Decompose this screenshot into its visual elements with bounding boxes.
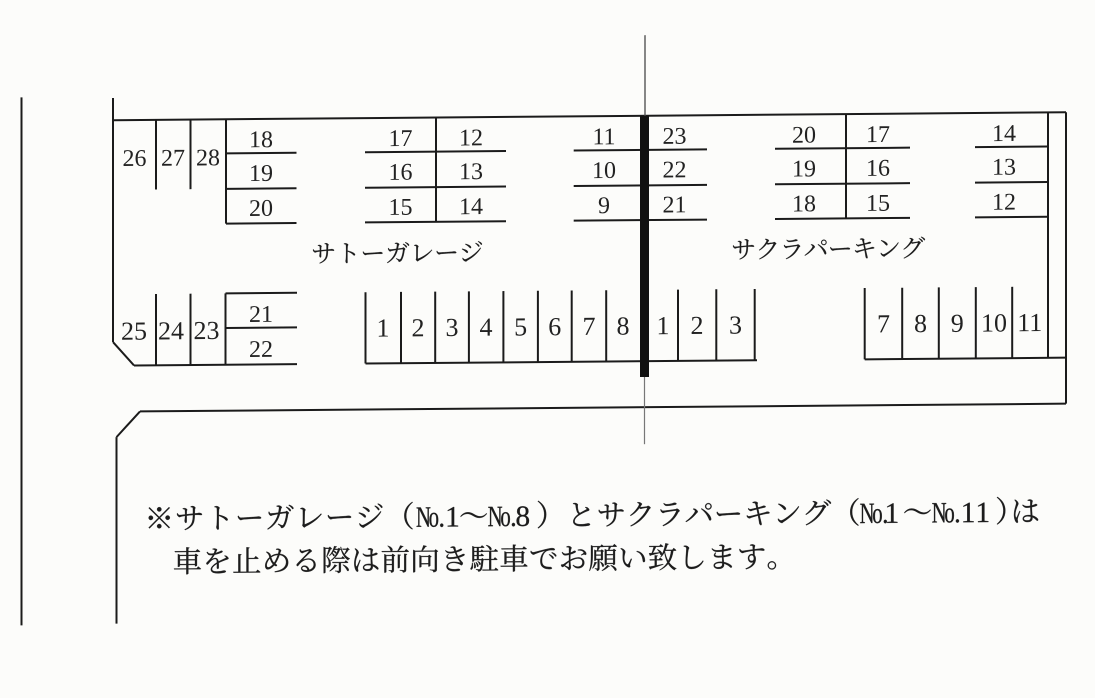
svg-text:21: 21 [249, 302, 273, 328]
svg-text:8: 8 [914, 309, 927, 338]
svg-text:23: 23 [663, 124, 687, 150]
svg-text:13: 13 [459, 159, 483, 185]
svg-text:22: 22 [663, 157, 687, 183]
svg-text:16: 16 [866, 156, 890, 182]
svg-text:15: 15 [866, 191, 890, 217]
svg-text:1: 1 [657, 311, 670, 340]
svg-text:15: 15 [389, 195, 413, 221]
svg-text:21: 21 [663, 192, 687, 218]
svg-text:9: 9 [951, 309, 964, 338]
svg-text:10: 10 [981, 308, 1007, 337]
svg-text:19: 19 [249, 161, 273, 187]
svg-text:5: 5 [514, 312, 527, 341]
svg-text:8: 8 [617, 312, 630, 341]
svg-text:14: 14 [992, 121, 1016, 147]
svg-text:4: 4 [480, 313, 493, 342]
svg-text:6: 6 [548, 312, 561, 341]
svg-text:18: 18 [249, 127, 273, 153]
svg-text:7: 7 [877, 309, 890, 338]
svg-text:13: 13 [992, 155, 1016, 181]
svg-text:22: 22 [249, 337, 273, 363]
svg-text:1: 1 [377, 314, 390, 343]
svg-text:17: 17 [389, 126, 413, 152]
svg-text:27: 27 [161, 146, 185, 172]
svg-text:11: 11 [592, 124, 615, 150]
svg-text:16: 16 [389, 160, 413, 186]
svg-text:17: 17 [866, 122, 890, 148]
svg-text:14: 14 [459, 194, 483, 220]
svg-text:7: 7 [583, 312, 596, 341]
svg-text:23: 23 [194, 316, 220, 345]
svg-text:10: 10 [592, 158, 616, 184]
svg-text:25: 25 [121, 317, 147, 346]
svg-text:12: 12 [992, 190, 1016, 216]
svg-text:26: 26 [123, 146, 147, 172]
svg-text:3: 3 [729, 311, 742, 340]
svg-text:9: 9 [598, 193, 610, 219]
svg-text:20: 20 [249, 196, 273, 222]
svg-text:24: 24 [158, 316, 184, 345]
svg-text:28: 28 [196, 145, 220, 171]
svg-text:18: 18 [792, 191, 816, 217]
svg-text:20: 20 [792, 123, 816, 149]
svg-text:11: 11 [1017, 308, 1042, 337]
svg-text:3: 3 [446, 313, 459, 342]
svg-text:12: 12 [459, 125, 483, 151]
svg-text:2: 2 [412, 313, 425, 342]
svg-text:19: 19 [792, 156, 816, 182]
svg-text:2: 2 [691, 311, 704, 340]
